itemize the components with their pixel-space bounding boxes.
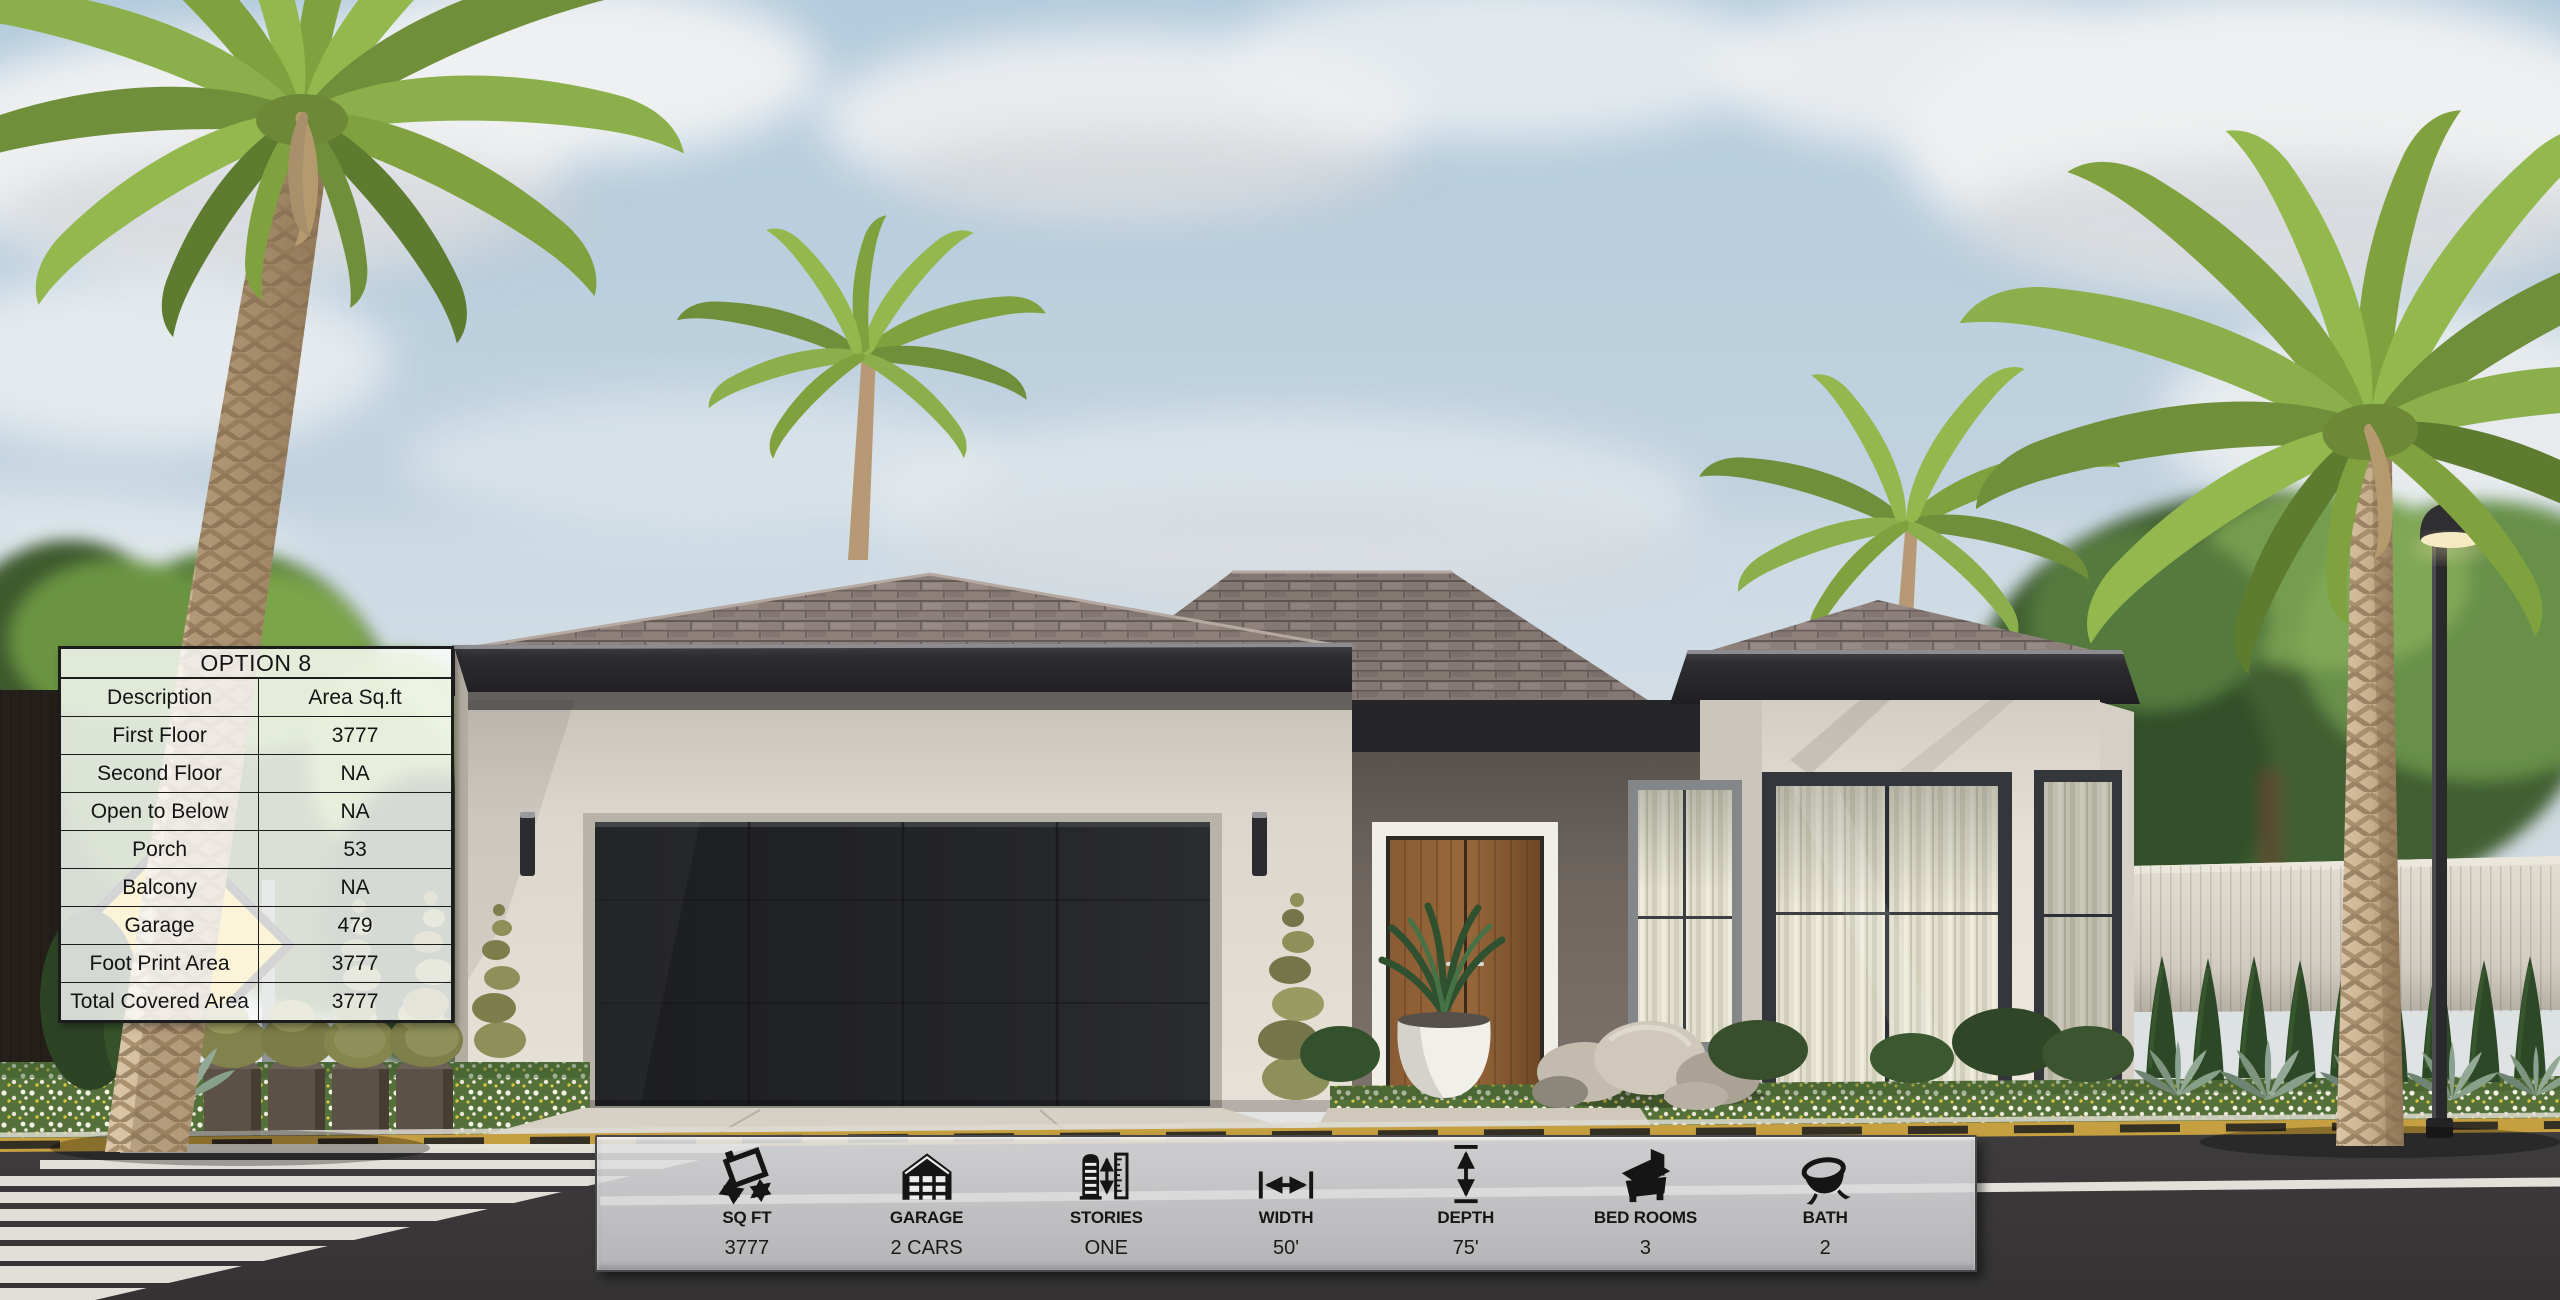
- info-item-bath: BATH2: [1735, 1145, 1915, 1264]
- spec-row-value: NA: [259, 755, 451, 793]
- spec-row-label: Foot Print Area: [61, 945, 259, 983]
- info-item-value: 2: [1820, 1237, 1831, 1260]
- bath-icon: [1796, 1145, 1854, 1205]
- depth-icon: [1446, 1145, 1486, 1205]
- spec-row-value: Area Sq.ft: [259, 679, 451, 717]
- wall-sconce-right: [1252, 812, 1267, 876]
- info-item-label: WIDTH: [1259, 1208, 1314, 1228]
- spec-row-value: 3777: [259, 983, 451, 1021]
- spec-table-grid: DescriptionArea Sq.ftFirst Floor3777Seco…: [61, 679, 451, 1020]
- garage-door: [583, 813, 1222, 1109]
- spec-table: OPTION 8 DescriptionArea Sq.ftFirst Floo…: [58, 646, 454, 1023]
- width-icon: [1255, 1145, 1317, 1205]
- spec-row: Total Covered Area3777: [61, 983, 451, 1021]
- info-item-width: WIDTH50': [1196, 1145, 1376, 1264]
- spec-table-title: OPTION 8: [61, 649, 451, 679]
- spec-row: BalconyNA: [61, 869, 451, 907]
- spec-row-value: NA: [259, 869, 451, 907]
- spec-row-label: Second Floor: [61, 755, 259, 793]
- stories-icon: >: [1078, 1145, 1134, 1205]
- info-item-label: SQ FT: [722, 1208, 771, 1228]
- spec-row: Porch53: [61, 831, 451, 869]
- wall-sconce-left: [520, 812, 535, 876]
- spec-row-label: Porch: [61, 831, 259, 869]
- info-bar: SQ FT3777GARAGE2 CARS>STORIESONEWIDTH50'…: [595, 1135, 1977, 1272]
- spec-row: Foot Print Area3777: [61, 945, 451, 983]
- spec-row: First Floor3777: [61, 717, 451, 755]
- spec-row-value: 3777: [259, 945, 451, 983]
- info-item-value: 3: [1640, 1237, 1651, 1260]
- info-item-label: DEPTH: [1437, 1208, 1494, 1228]
- info-item-value: 3777: [725, 1237, 770, 1260]
- info-item-label: STORIES: [1070, 1208, 1143, 1228]
- garage-icon: [898, 1145, 956, 1205]
- info-item-label: BATH: [1803, 1208, 1848, 1228]
- spec-row: Garage479: [61, 907, 451, 945]
- spec-row-label: Balcony: [61, 869, 259, 907]
- floor-area-icon: [716, 1145, 778, 1205]
- info-item-sq-ft: SQ FT3777: [657, 1145, 837, 1264]
- spec-row: Open to BelowNA: [61, 793, 451, 831]
- spec-row-value: NA: [259, 793, 451, 831]
- bay-window-left: [1628, 780, 1742, 1052]
- spec-header-row: DescriptionArea Sq.ft: [61, 679, 451, 717]
- spec-row-label: Total Covered Area: [61, 983, 259, 1021]
- spec-row-label: Open to Below: [61, 793, 259, 831]
- info-item-value: ONE: [1085, 1237, 1128, 1260]
- info-item-value: 50': [1273, 1237, 1299, 1260]
- spec-row-label: First Floor: [61, 717, 259, 755]
- spec-row-value: 53: [259, 831, 451, 869]
- info-item-value: 2 CARS: [890, 1237, 962, 1260]
- spec-row-label: Garage: [61, 907, 259, 945]
- info-item-depth: DEPTH75': [1376, 1145, 1556, 1264]
- info-item-label: GARAGE: [890, 1208, 963, 1228]
- spec-row-label: Description: [61, 679, 259, 717]
- info-item-garage: GARAGE2 CARS: [837, 1145, 1017, 1264]
- spec-row: Second FloorNA: [61, 755, 451, 793]
- spec-row-value: 3777: [259, 717, 451, 755]
- info-item-label: BED ROOMS: [1594, 1208, 1697, 1228]
- spec-row-value: 479: [259, 907, 451, 945]
- bedrooms-icon: [1614, 1145, 1676, 1205]
- info-item-value: 75': [1453, 1237, 1479, 1260]
- info-item-stories: >STORIESONE: [1016, 1145, 1196, 1264]
- info-item-bed-rooms: BED ROOMS3: [1556, 1145, 1736, 1264]
